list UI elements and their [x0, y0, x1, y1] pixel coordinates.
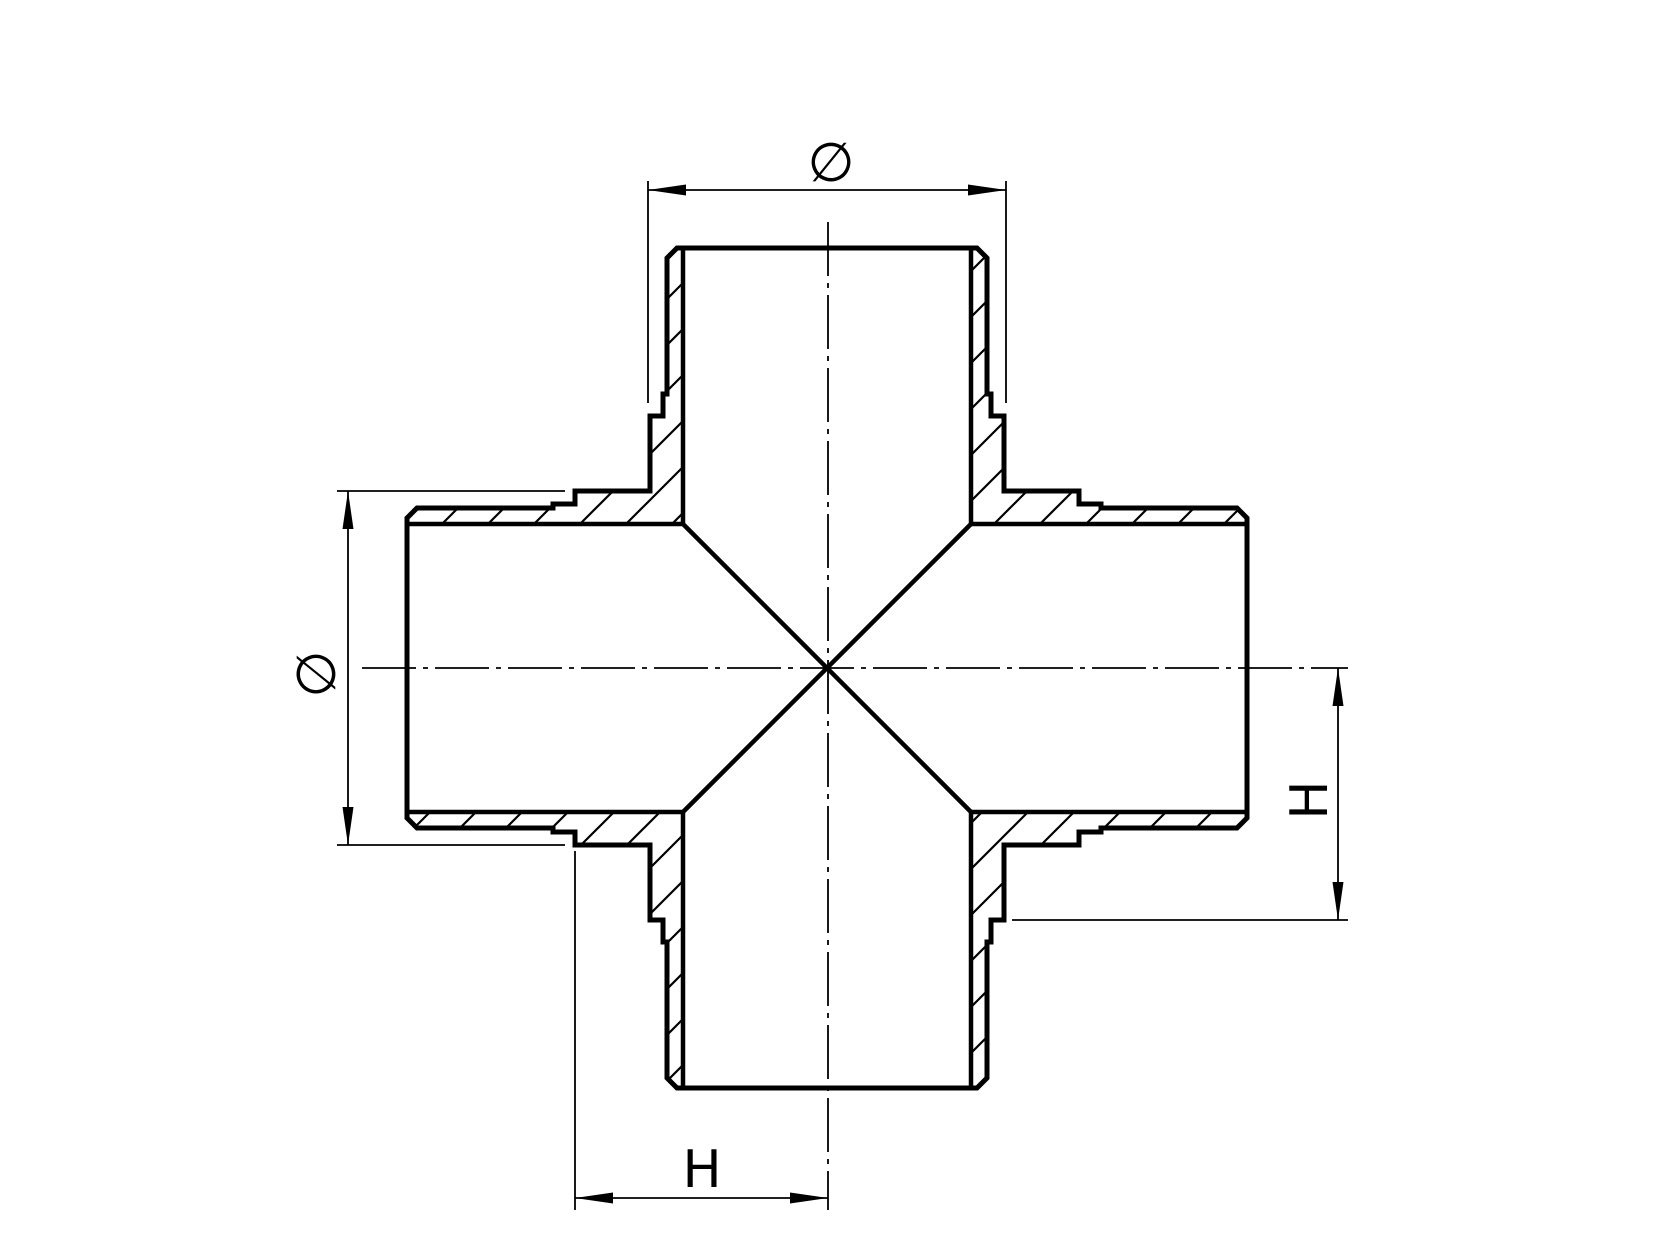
right-height-label: H: [1280, 780, 1340, 819]
left-diameter-label: ∅: [284, 650, 347, 697]
technical-drawing: ∅ ∅ H H: [0, 0, 1680, 1260]
bottom-height-label: H: [682, 1140, 721, 1200]
drawing-sheet: ∅ ∅ H H: [0, 0, 1680, 1260]
top-diameter-label: ∅: [807, 131, 854, 194]
